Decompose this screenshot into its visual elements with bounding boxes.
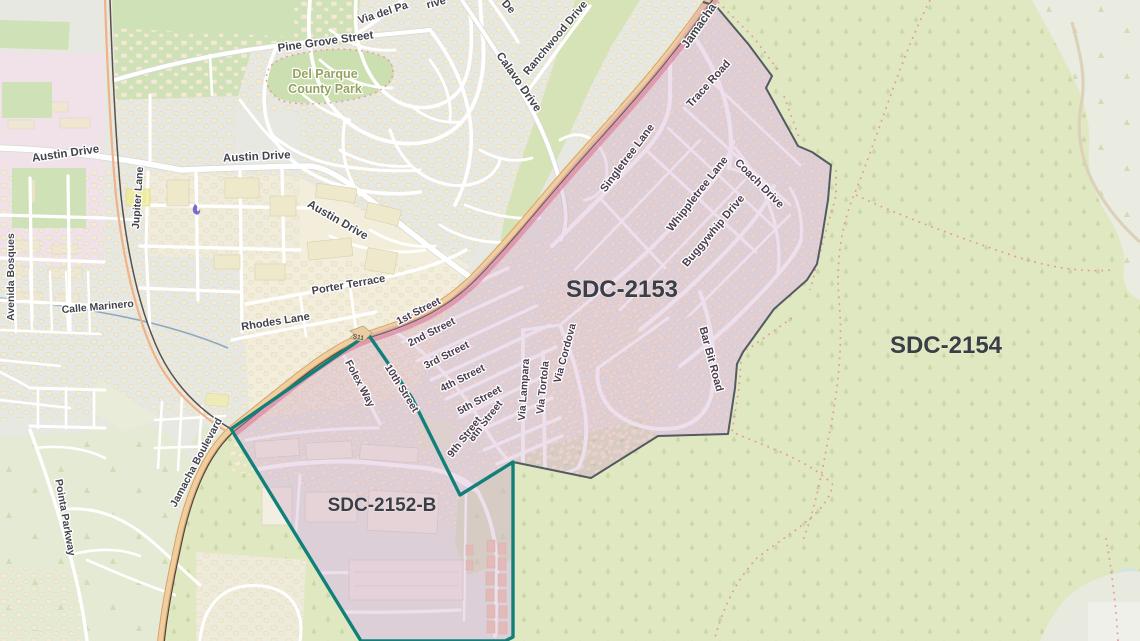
svg-text:Avenida Bosques: Avenida Bosques	[5, 233, 17, 321]
svg-text:County Park: County Park	[288, 82, 362, 96]
svg-text:Del Parque: Del Parque	[292, 67, 357, 81]
svg-text:SDC-2152-B: SDC-2152-B	[328, 495, 437, 516]
svg-text:SDC-2154: SDC-2154	[890, 332, 1003, 359]
svg-text:SDC-2153: SDC-2153	[566, 276, 678, 303]
